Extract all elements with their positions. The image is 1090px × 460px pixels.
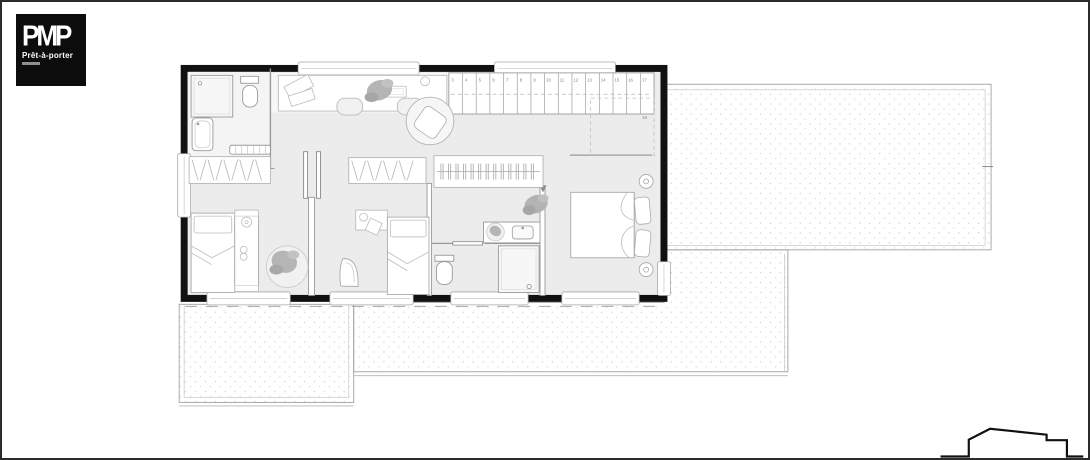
window-top-1 — [298, 62, 419, 75]
floor-plan-drawing: 3 4 5 6 7 8 9 10 11 12 13 14 15 16 17 18 — [2, 2, 1088, 458]
window-bottom-1 — [207, 292, 290, 305]
desk-chair — [337, 98, 363, 115]
stair-number: 13 — [587, 77, 592, 82]
stair-number: 17 — [642, 77, 647, 82]
wardrobe-bedroom1 — [189, 157, 270, 184]
stair-number: 10 — [546, 77, 551, 82]
stair-number: 14 — [601, 77, 606, 82]
section-profile-outline — [941, 429, 1084, 457]
stair-number: 15 — [614, 77, 619, 82]
vanity — [484, 222, 541, 243]
shower-1 — [191, 75, 233, 117]
stair-number: 12 — [573, 77, 578, 82]
pillow — [194, 216, 232, 233]
lounge-chair — [406, 97, 454, 145]
plant-on-rug — [266, 246, 308, 288]
bathtub-1 — [192, 118, 213, 151]
stair-number: 16 — [628, 77, 633, 82]
bed-single-1 — [191, 213, 235, 292]
pillow — [390, 220, 426, 237]
wardrobe-bedroom2 — [349, 158, 426, 184]
pmp-logo: PMP Prêt-à-porter — [16, 14, 86, 86]
nightstand-lamp-top — [639, 174, 653, 188]
logo-brand: PMP — [22, 21, 80, 50]
desk-cup — [421, 77, 430, 86]
terrace-south-left — [179, 304, 353, 406]
pillow — [634, 229, 651, 257]
nightstand-lamp-bottom — [639, 263, 653, 277]
window-right — [658, 262, 671, 296]
toilet-1 — [241, 76, 259, 107]
bathroom2-door — [453, 242, 483, 245]
pocket-door-right — [317, 152, 321, 199]
wardrobes — [189, 156, 543, 188]
stair-landing-label: 18 — [642, 115, 647, 120]
bedroom-divider-wall — [309, 197, 315, 295]
terrace-right — [667, 84, 993, 250]
pillow — [634, 197, 651, 225]
bed-single-2 — [387, 217, 429, 294]
drawing-sheet: PMP Prêt-à-porter — [0, 0, 1090, 460]
toilet-2 — [435, 255, 454, 284]
flower-icon — [360, 213, 368, 221]
wardrobe-hall — [434, 156, 543, 188]
flower-icon — [242, 217, 252, 227]
radiator-bench — [230, 145, 271, 154]
logo-fineprint — [22, 62, 40, 65]
stair-number: 11 — [560, 77, 565, 82]
window-bottom-4 — [562, 292, 639, 305]
window-bottom-3 — [451, 292, 528, 305]
window-left — [178, 154, 191, 217]
shower-2 — [498, 246, 539, 293]
shelf-unit — [235, 210, 259, 291]
pocket-door-left — [304, 152, 308, 199]
